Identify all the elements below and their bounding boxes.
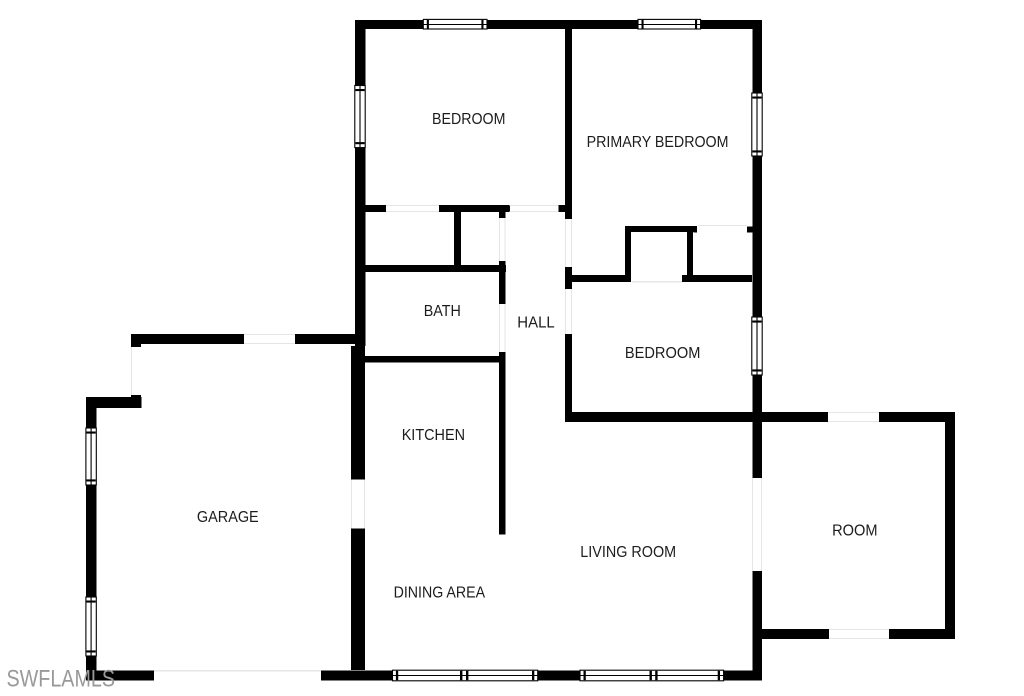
svg-text:BEDROOM: BEDROOM <box>432 111 505 128</box>
svg-text:SWFLAMLS: SWFLAMLS <box>7 666 116 693</box>
svg-text:KITCHEN: KITCHEN <box>402 427 465 444</box>
svg-text:DINING AREA: DINING AREA <box>394 584 486 601</box>
svg-text:HALL: HALL <box>517 315 555 332</box>
svg-text:PRIMARY BEDROOM: PRIMARY BEDROOM <box>587 134 729 151</box>
svg-text:ROOM: ROOM <box>832 523 877 540</box>
svg-text:LIVING ROOM: LIVING ROOM <box>580 544 676 561</box>
svg-text:GARAGE: GARAGE <box>197 509 259 526</box>
svg-text:BEDROOM: BEDROOM <box>625 345 701 362</box>
svg-text:BATH: BATH <box>424 303 461 320</box>
